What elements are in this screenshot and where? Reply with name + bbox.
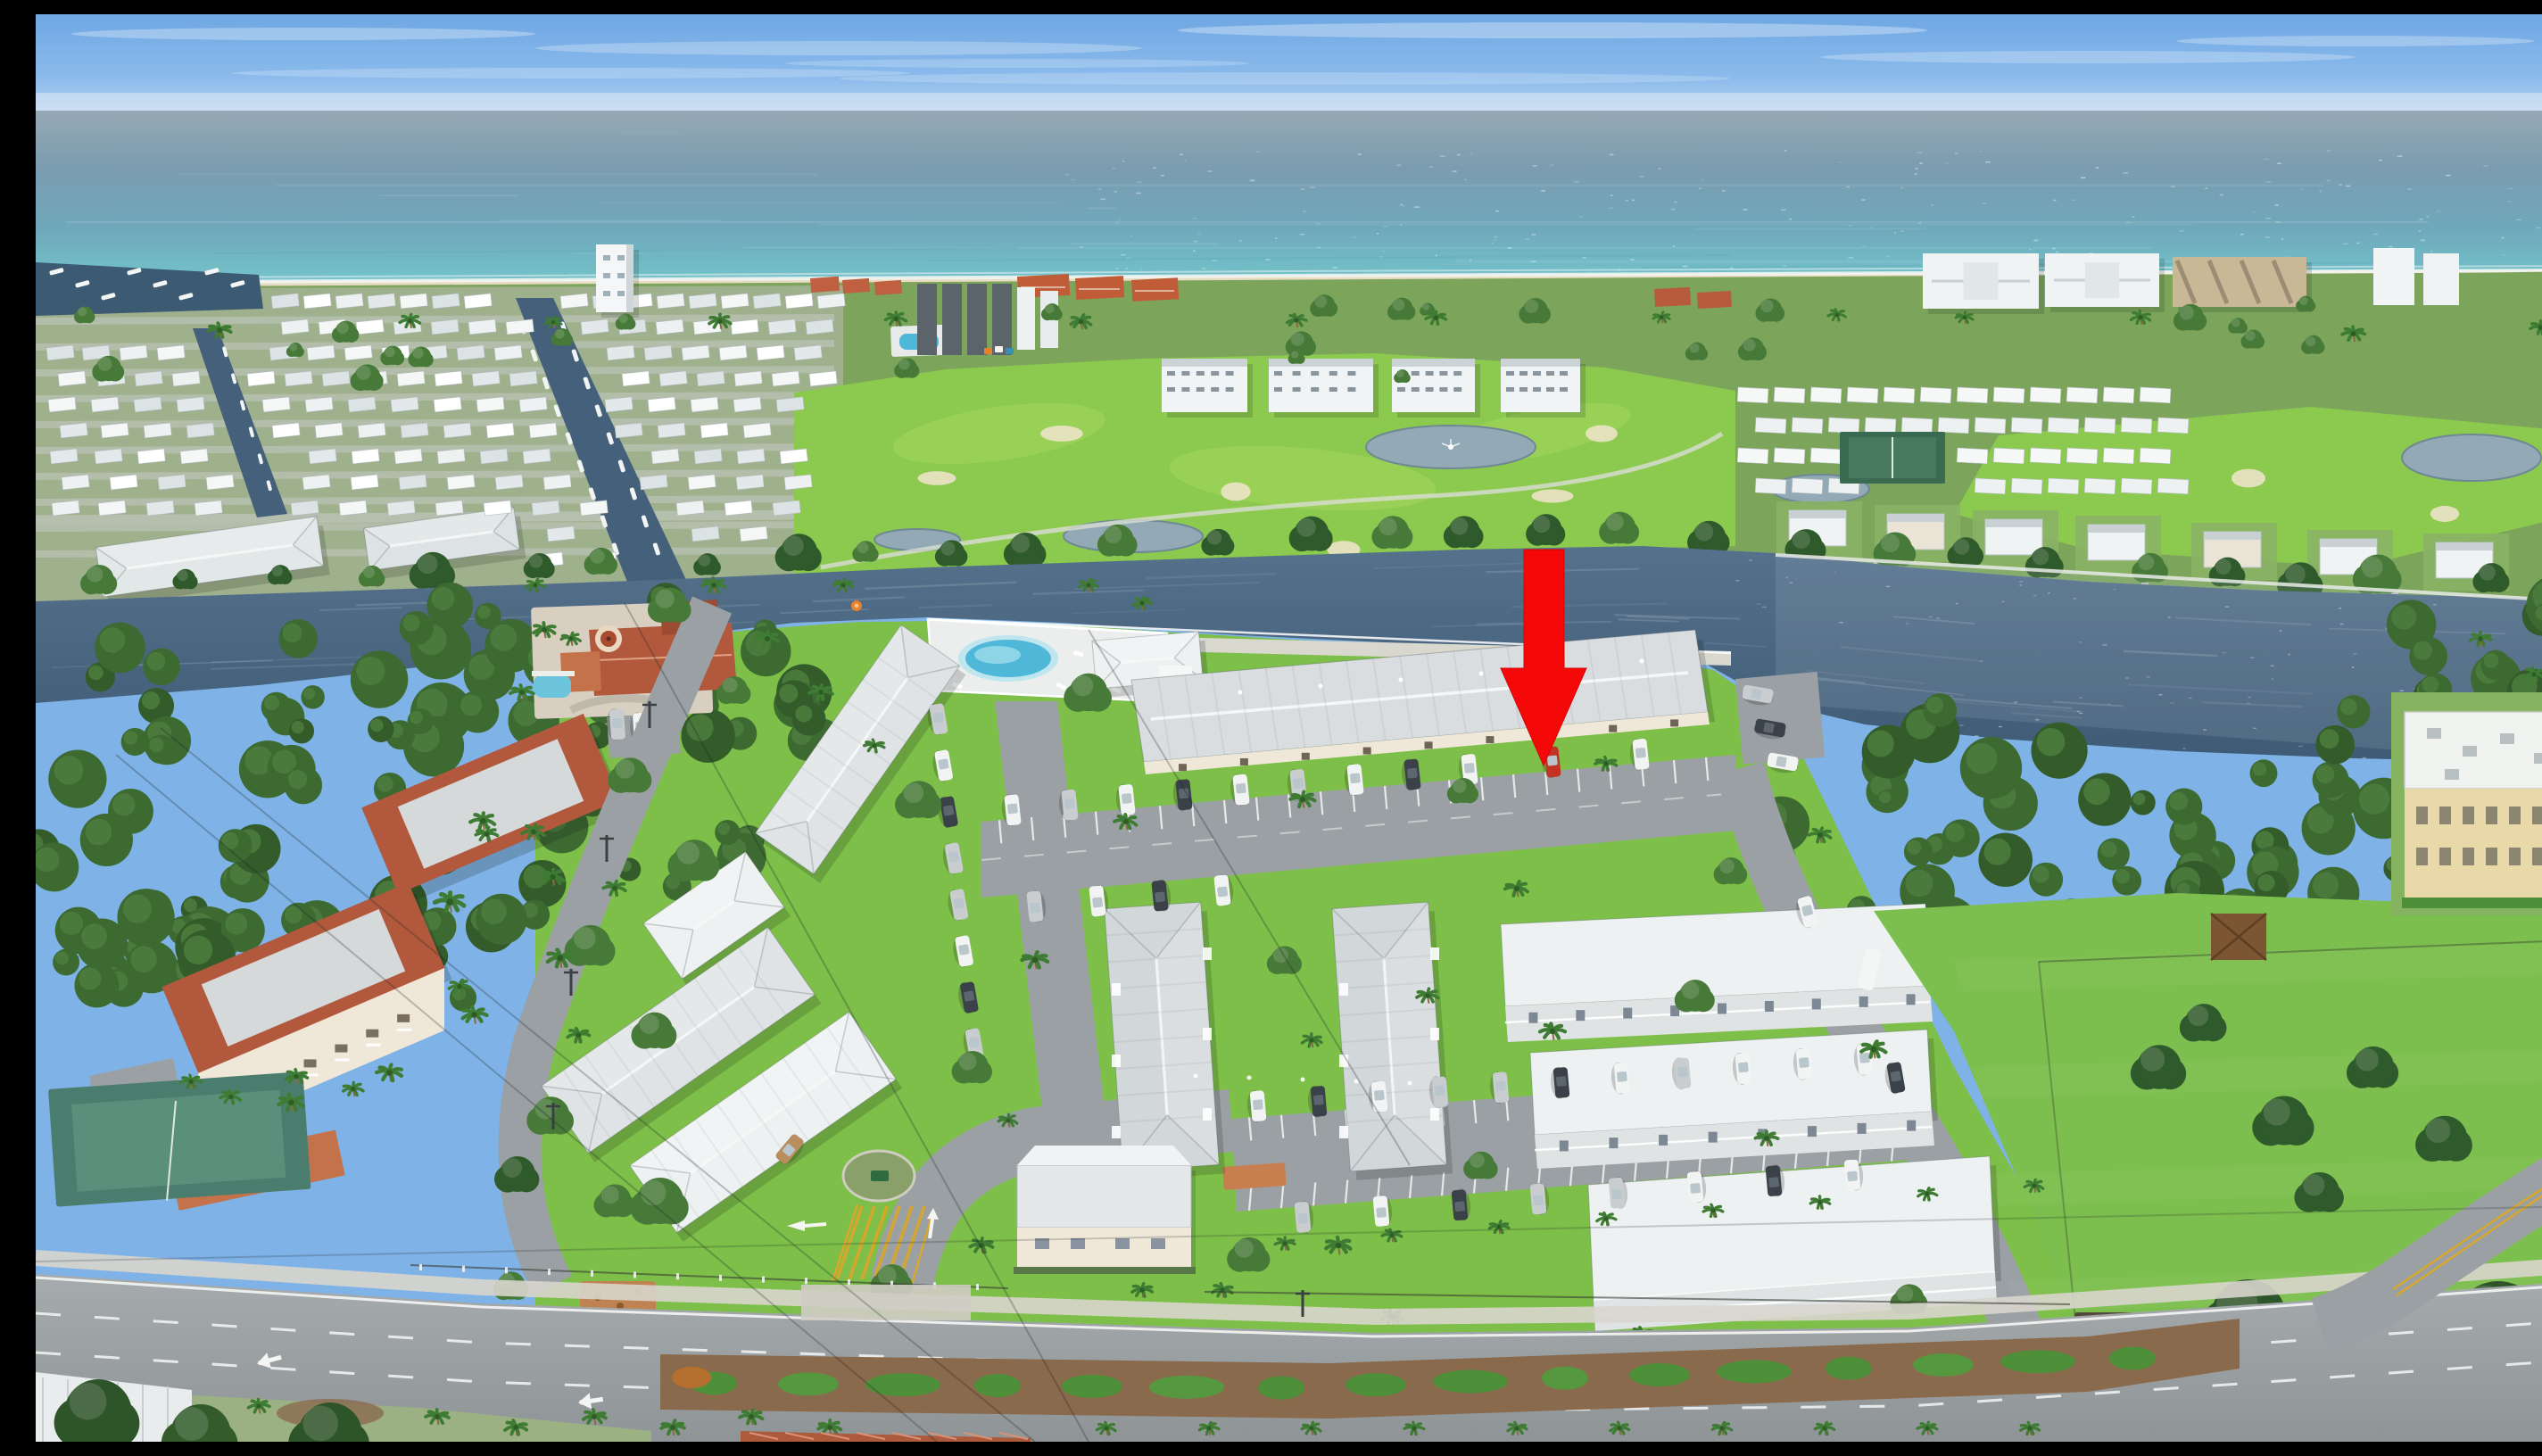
aerial-photograph [36, 14, 2542, 1442]
ocean-region [36, 111, 2542, 300]
yellow-condo-building [2391, 692, 2542, 915]
sky-region [36, 14, 2542, 121]
aerial-scene [36, 14, 2542, 1442]
